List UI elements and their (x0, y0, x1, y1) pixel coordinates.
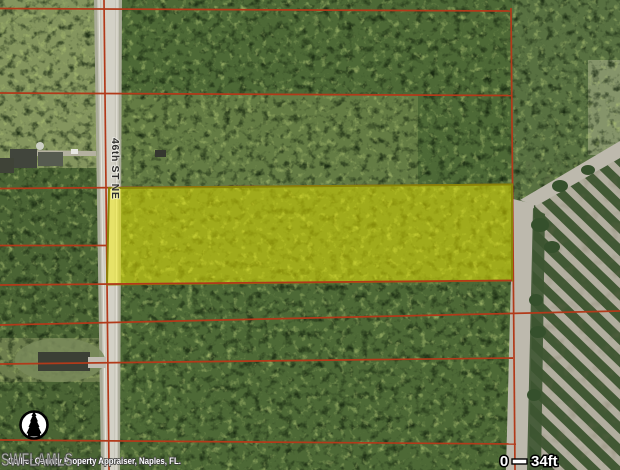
svg-text:34ft: 34ft (531, 453, 558, 470)
svg-text:0: 0 (500, 453, 508, 470)
svg-text:SWFLAMLS: SWFLAMLS (1, 449, 73, 470)
svg-text:46th ST NE: 46th ST NE (109, 138, 121, 199)
